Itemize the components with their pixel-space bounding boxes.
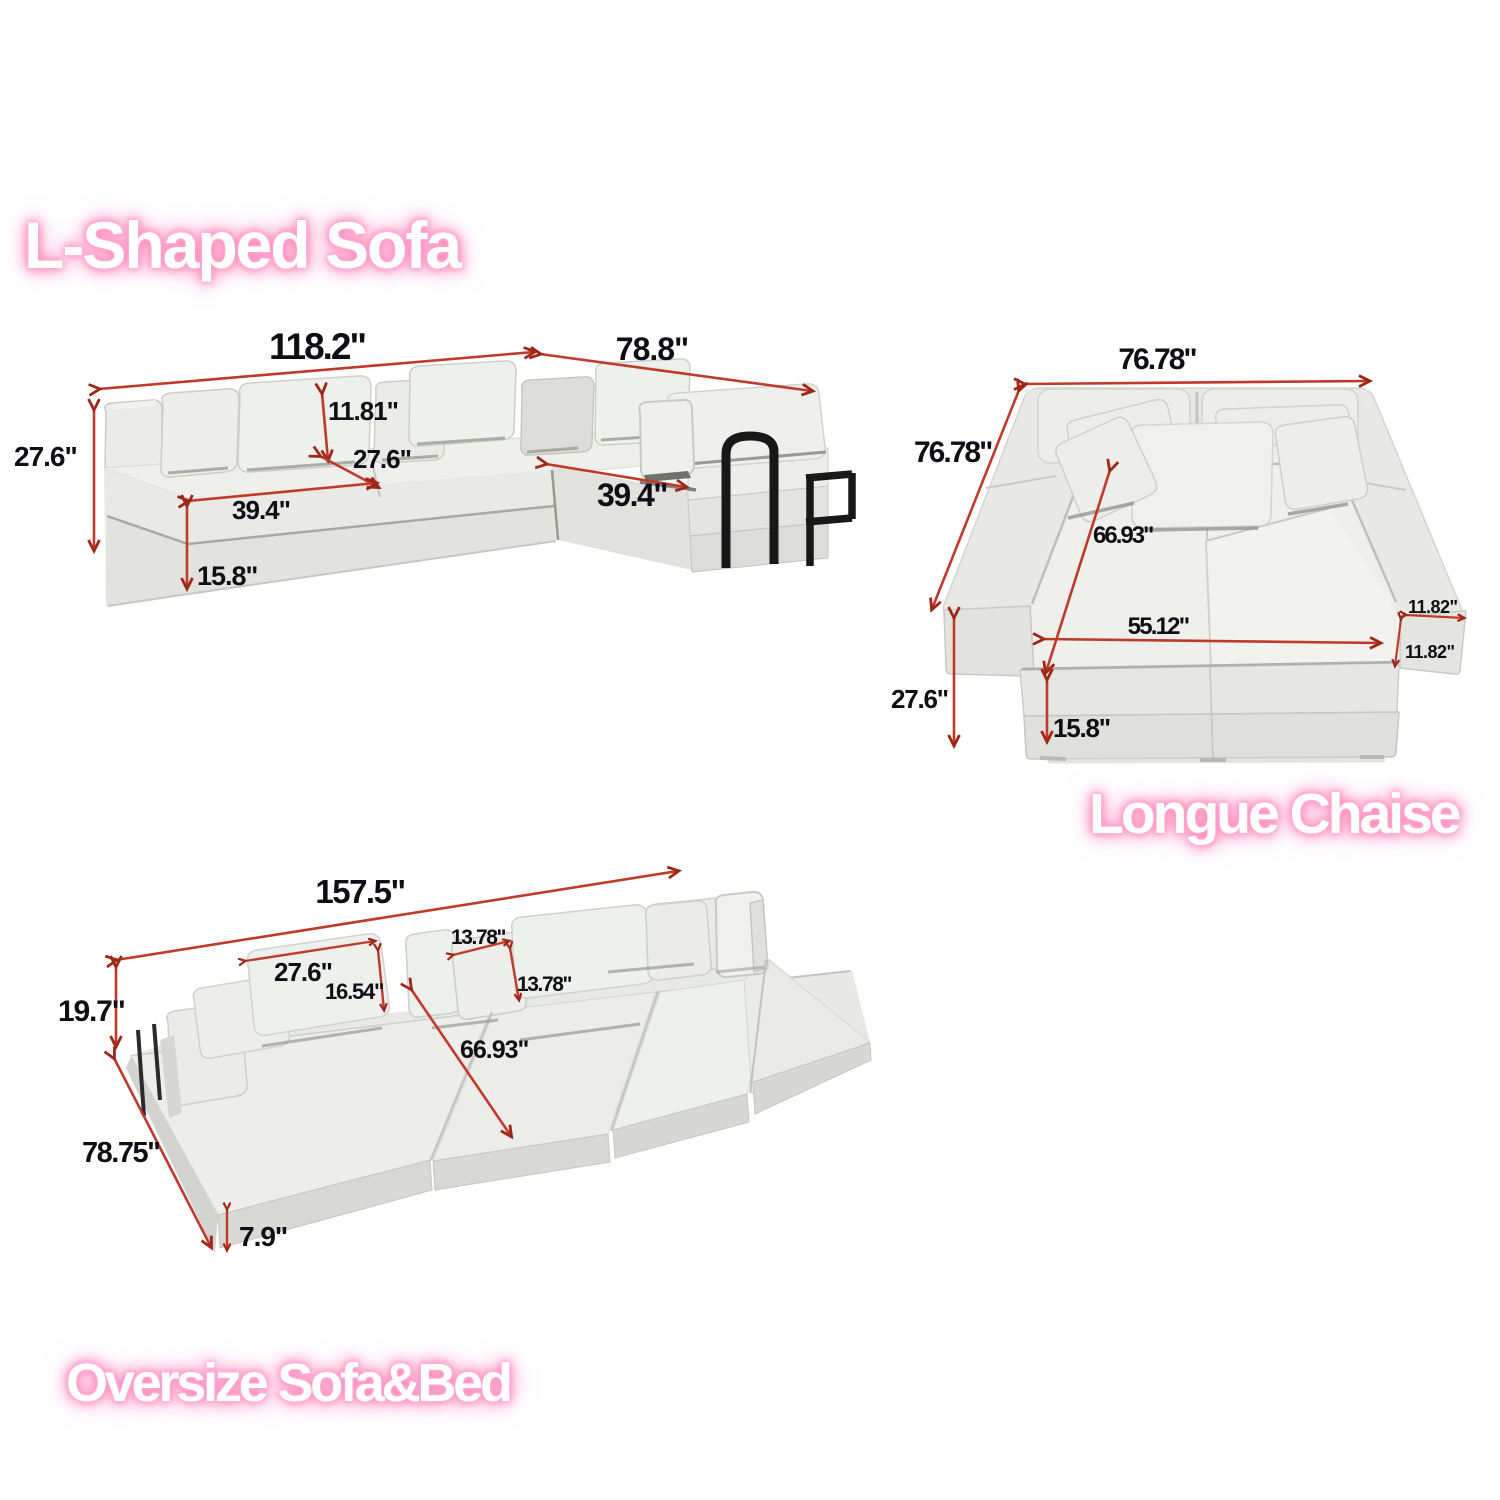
svg-text:66.93": 66.93" — [1093, 522, 1153, 549]
svg-text:27.6": 27.6" — [353, 444, 411, 474]
svg-text:78.8": 78.8" — [616, 331, 688, 367]
svg-text:39.4": 39.4" — [597, 477, 667, 513]
svg-text:157.5": 157.5" — [315, 873, 404, 910]
svg-text:13.78": 13.78" — [451, 926, 506, 949]
svg-text:55.12": 55.12" — [1128, 613, 1189, 640]
svg-text:76.78": 76.78" — [1118, 343, 1196, 376]
svg-text:15.8": 15.8" — [197, 561, 258, 591]
svg-text:13.78": 13.78" — [517, 973, 572, 996]
svg-text:11.82": 11.82" — [1408, 597, 1458, 617]
svg-text:15.8": 15.8" — [1053, 713, 1110, 743]
svg-text:16.54": 16.54" — [325, 979, 383, 1004]
svg-text:78.75": 78.75" — [82, 1137, 159, 1169]
svg-text:76.78": 76.78" — [914, 436, 992, 469]
svg-text:11.82": 11.82" — [1405, 642, 1455, 662]
svg-text:11.81": 11.81" — [328, 396, 398, 426]
svg-text:27.6": 27.6" — [274, 957, 332, 987]
svg-text:39.4": 39.4" — [232, 495, 290, 525]
svg-text:27.6": 27.6" — [891, 684, 948, 714]
svg-text:19.7": 19.7" — [58, 995, 125, 1028]
svg-text:7.9": 7.9" — [239, 1221, 287, 1252]
svg-text:66.93": 66.93" — [460, 1036, 529, 1064]
svg-text:118.2": 118.2" — [269, 326, 366, 367]
svg-text:27.6": 27.6" — [14, 441, 77, 472]
